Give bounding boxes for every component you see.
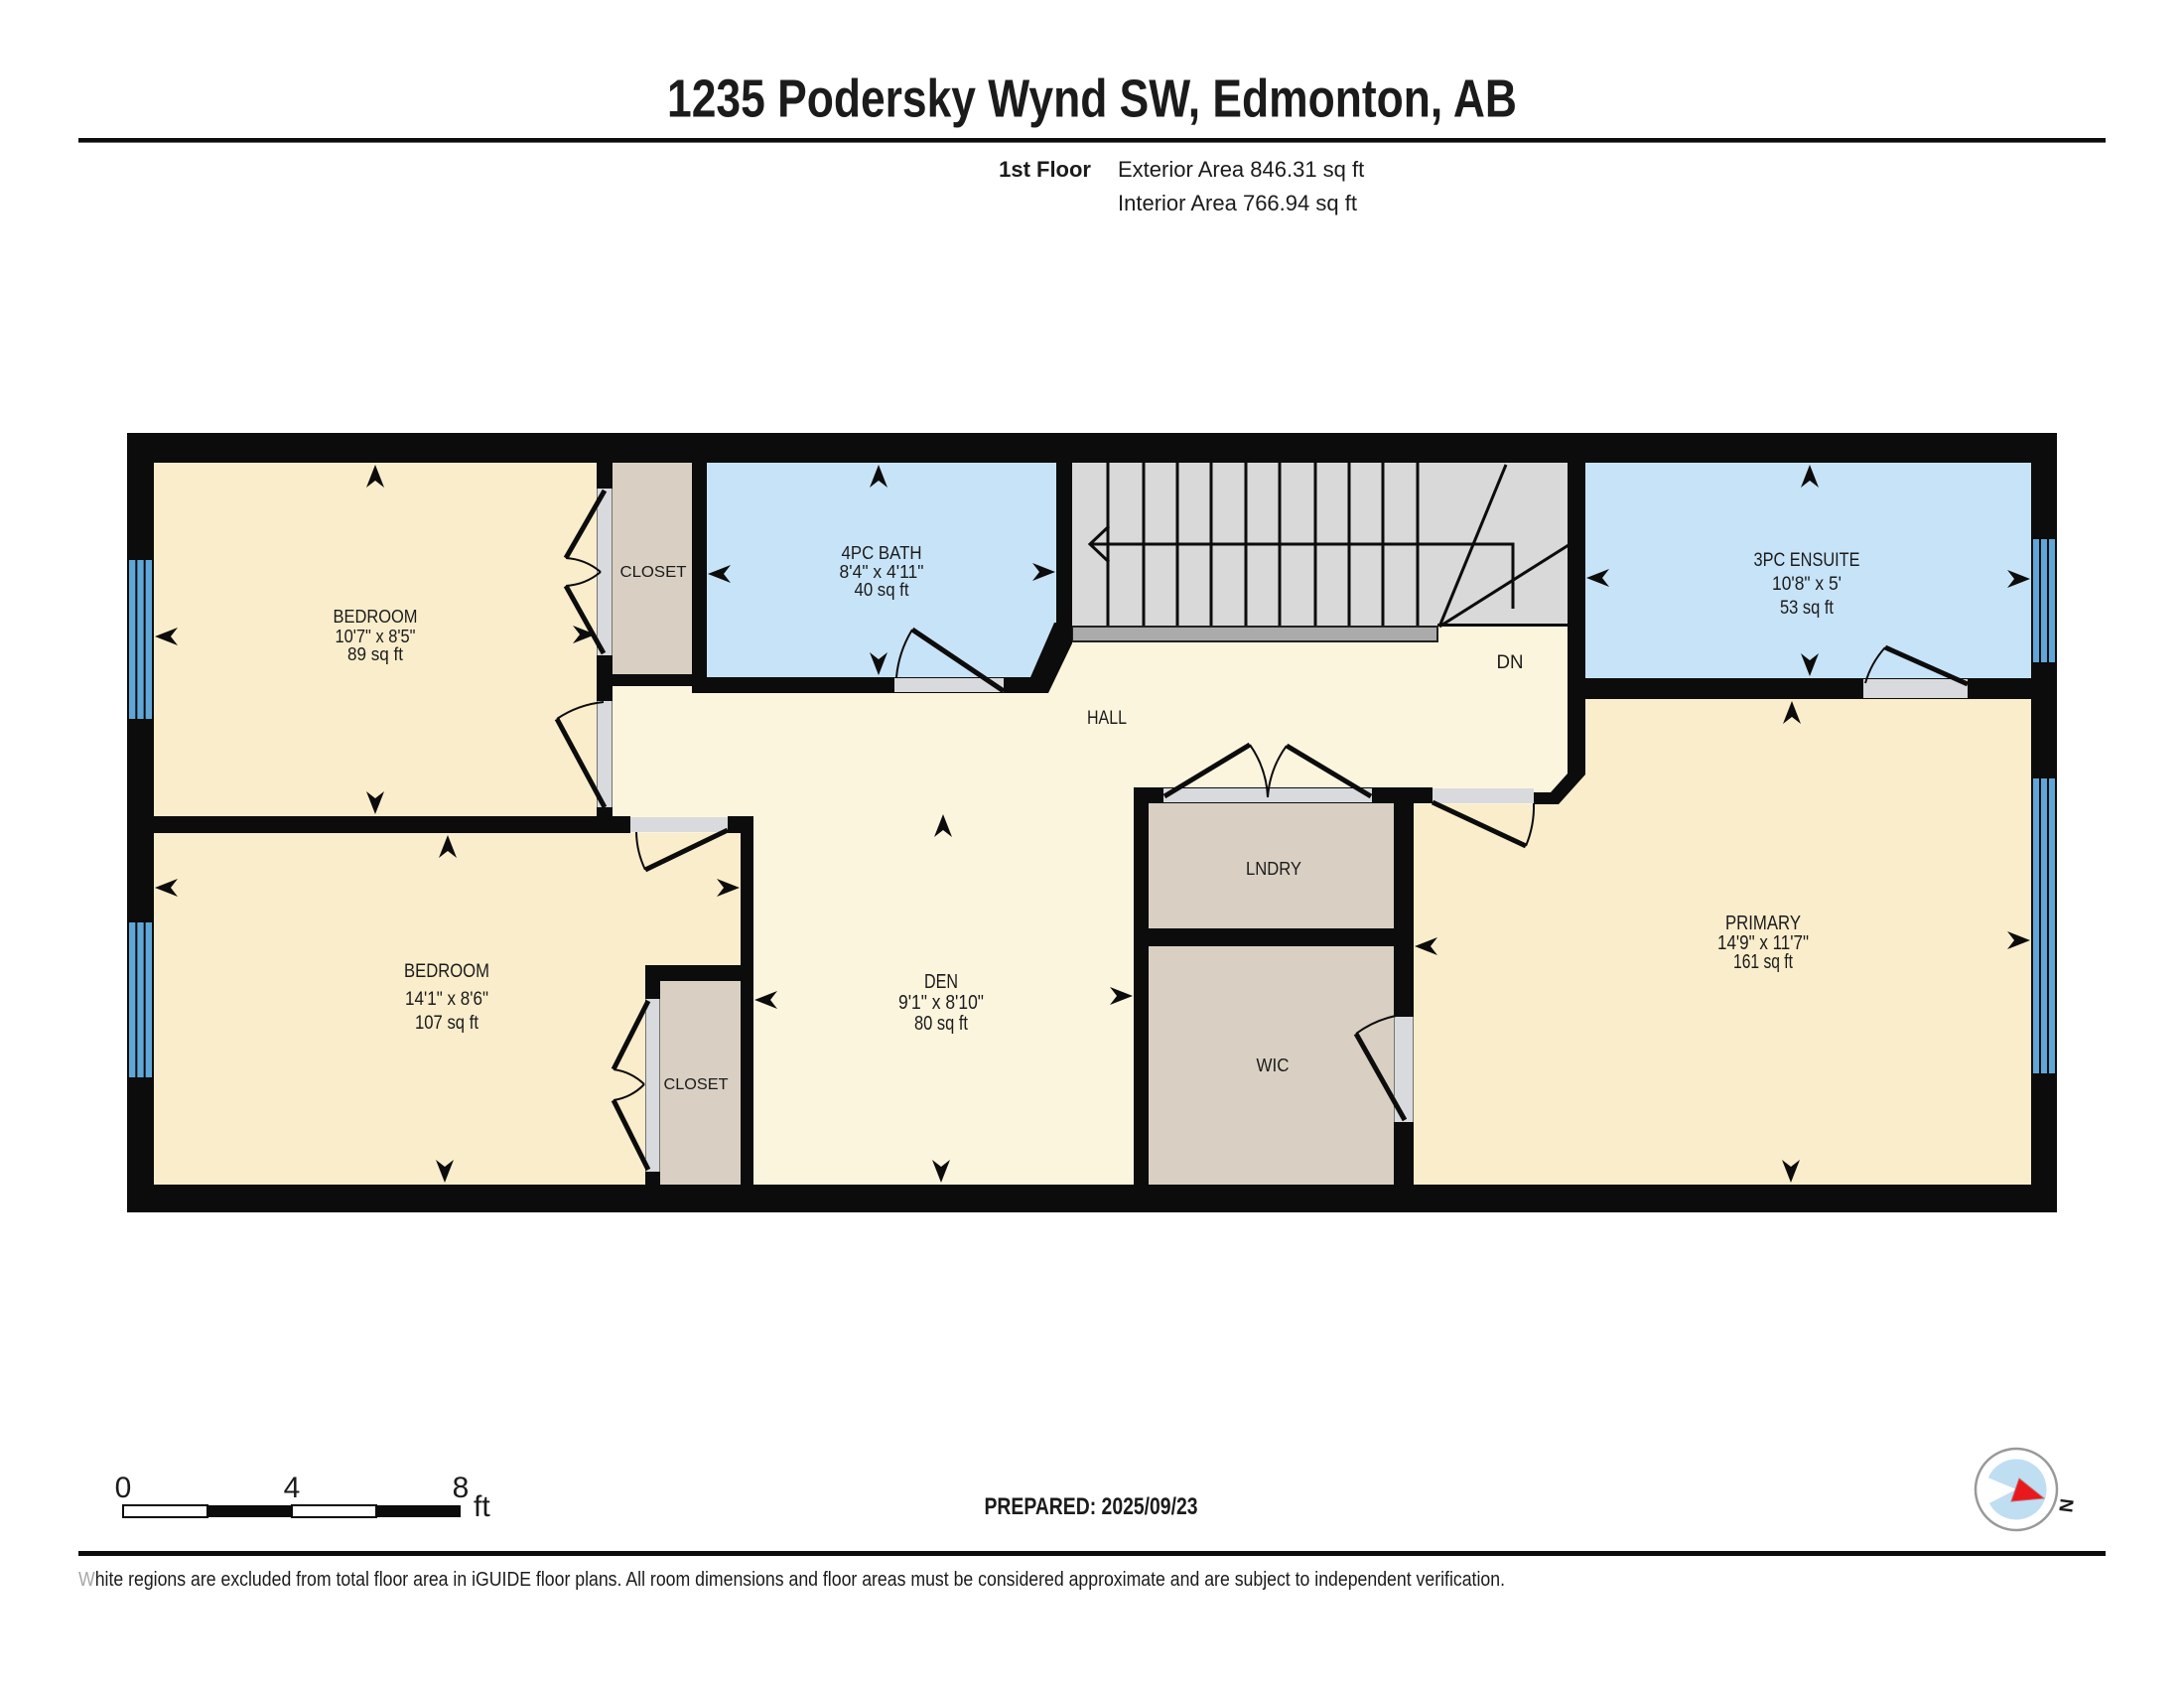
- svg-text:LNDRY: LNDRY: [1246, 858, 1301, 879]
- svg-text:1235 Podersky Wynd SW, Edmonto: 1235 Podersky Wynd SW, Edmonton, AB: [667, 70, 1517, 129]
- svg-text:CLOSET: CLOSET: [620, 564, 688, 581]
- svg-text:53 sq ft: 53 sq ft: [1780, 598, 1835, 619]
- svg-text:14'1" x 8'6": 14'1" x 8'6": [405, 989, 488, 1010]
- svg-text:3PC ENSUITE: 3PC ENSUITE: [1754, 550, 1860, 571]
- svg-text:1st Floor: 1st Floor: [999, 157, 1091, 182]
- svg-text:107 sq ft: 107 sq ft: [415, 1013, 479, 1034]
- svg-text:40 sq ft: 40 sq ft: [855, 580, 909, 600]
- svg-text:N: N: [2054, 1497, 2077, 1513]
- svg-text:161 sq ft: 161 sq ft: [1733, 951, 1793, 973]
- svg-text:9'1" x 8'10": 9'1" x 8'10": [898, 992, 984, 1014]
- svg-text:BEDROOM: BEDROOM: [404, 961, 489, 982]
- svg-text:89 sq ft: 89 sq ft: [347, 644, 403, 664]
- svg-text:10'7" x 8'5": 10'7" x 8'5": [336, 627, 416, 646]
- svg-text:4: 4: [284, 1472, 301, 1504]
- svg-text:ft: ft: [474, 1490, 490, 1523]
- svg-text:8: 8: [453, 1472, 470, 1504]
- svg-text:PRIMARY: PRIMARY: [1725, 913, 1801, 934]
- svg-text:BEDROOM: BEDROOM: [334, 607, 418, 627]
- svg-text:HALL: HALL: [1087, 708, 1127, 729]
- svg-text:80 sq ft: 80 sq ft: [914, 1013, 968, 1035]
- svg-text:Interior Area 766.94 sq ft: Interior Area 766.94 sq ft: [1118, 191, 1357, 215]
- svg-text:8'4" x 4'11": 8'4" x 4'11": [840, 562, 924, 582]
- svg-text:PREPARED: 2025/09/23: PREPARED: 2025/09/23: [985, 1493, 1198, 1520]
- svg-text:Exterior Area 846.31 sq ft: Exterior Area 846.31 sq ft: [1118, 157, 1364, 182]
- svg-text:DEN: DEN: [924, 971, 958, 993]
- svg-text:4PC BATH: 4PC BATH: [842, 543, 922, 563]
- svg-text:0: 0: [115, 1472, 132, 1504]
- svg-text:WIC: WIC: [1257, 1055, 1290, 1075]
- svg-text:White regions are excluded fro: White regions are excluded from total fl…: [78, 1568, 1505, 1591]
- svg-text:CLOSET: CLOSET: [664, 1076, 730, 1093]
- svg-text:DN: DN: [1497, 651, 1524, 673]
- svg-text:10'8" x 5': 10'8" x 5': [1772, 574, 1842, 595]
